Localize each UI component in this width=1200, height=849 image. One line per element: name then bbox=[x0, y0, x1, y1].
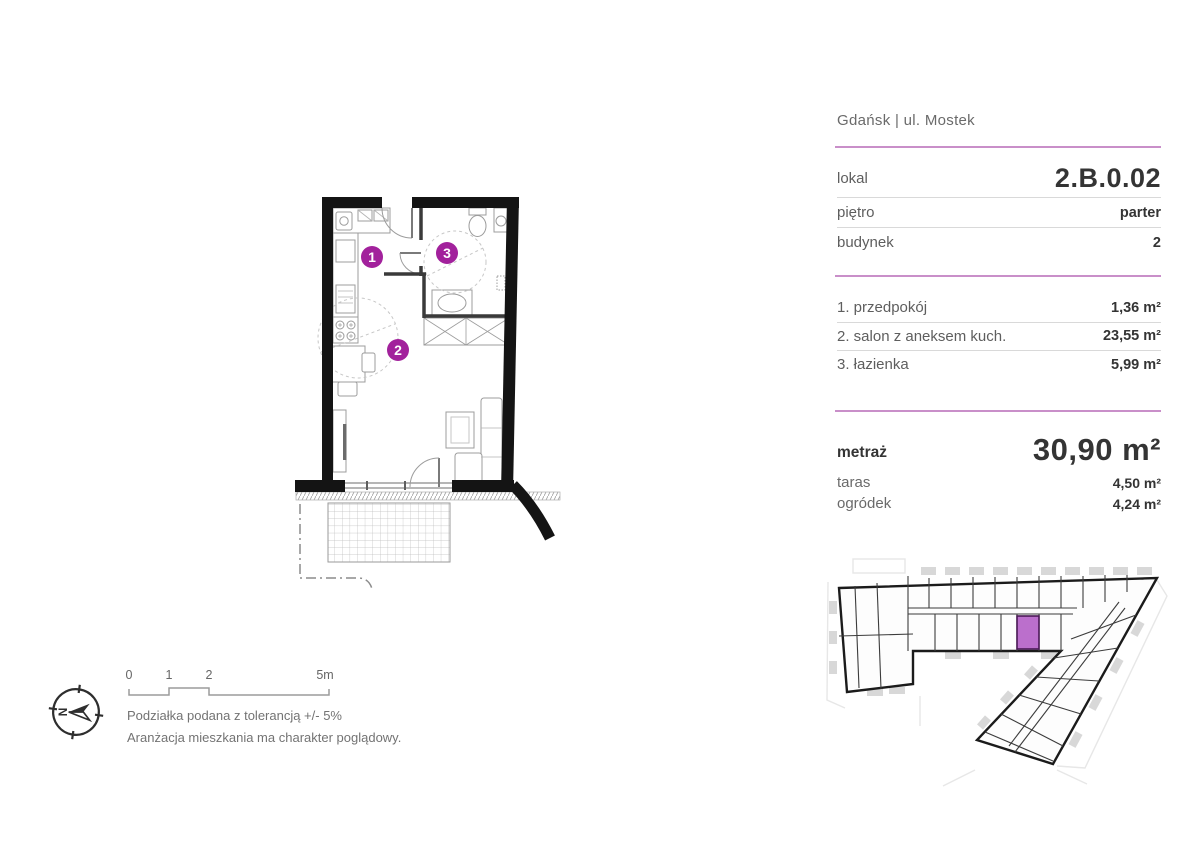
tv-unit bbox=[333, 410, 347, 472]
room-area: 23,55 m² bbox=[1103, 328, 1161, 344]
detail-row-pietro: piętro parter bbox=[837, 198, 1161, 228]
purple-divider bbox=[835, 275, 1161, 277]
stove bbox=[333, 317, 358, 343]
room-label: 2. salon z aneksem kuch. bbox=[837, 328, 1006, 345]
purple-divider bbox=[835, 410, 1161, 412]
scale-bar: 0 1 2 5m bbox=[125, 668, 340, 700]
detail-row-lokal: lokal 2.B.0.02 bbox=[837, 160, 1161, 198]
purple-divider bbox=[835, 146, 1161, 148]
scale-label-0: 0 bbox=[126, 668, 133, 682]
project-location: Gdańsk | ul. Mostek bbox=[837, 112, 975, 129]
svg-text:1: 1 bbox=[368, 249, 376, 265]
pietro-label: piętro bbox=[837, 204, 875, 221]
budynek-label: budynek bbox=[837, 234, 894, 251]
washing-machine bbox=[494, 208, 508, 232]
room-area: 1,36 m² bbox=[1111, 300, 1161, 316]
room-label: 1. przedpokój bbox=[837, 299, 927, 316]
wardrobe bbox=[424, 318, 509, 345]
taras-label: taras bbox=[837, 474, 870, 491]
disclaimer-notes: Podziałka podana z tolerancją +/- 5% Ara… bbox=[127, 705, 401, 749]
note-tolerance: Podziałka podana z tolerancją +/- 5% bbox=[127, 705, 401, 727]
terrace bbox=[328, 503, 450, 562]
floor-value: parter bbox=[1120, 205, 1161, 221]
compass-north-letter: N bbox=[56, 708, 70, 717]
metraz-label: metraż bbox=[837, 444, 887, 468]
room-marker-2: 2 bbox=[387, 339, 409, 361]
note-arrangement: Aranżacja mieszkania ma charakter pogląd… bbox=[127, 727, 401, 749]
scale-label-2: 2 bbox=[206, 668, 213, 682]
room-area: 5,99 m² bbox=[1111, 357, 1161, 373]
room-row-salon: 2. salon z aneksem kuch. 23,55 m² bbox=[837, 322, 1161, 351]
svg-text:2: 2 bbox=[394, 342, 402, 358]
room-marker-3: 3 bbox=[436, 242, 458, 264]
furniture-layer bbox=[331, 208, 509, 486]
scale-label-1: 1 bbox=[166, 668, 173, 682]
room-row-przedpokoj: 1. przedpokój 1,36 m² bbox=[837, 293, 1161, 323]
unit-number: 2.B.0.02 bbox=[1055, 163, 1161, 194]
summary-row-ogrodek: ogródek 4,24 m² bbox=[837, 493, 1161, 514]
building-overview-plan bbox=[825, 556, 1170, 794]
garden-area: 4,24 m² bbox=[1113, 496, 1161, 512]
lokal-label: lokal bbox=[837, 170, 868, 187]
room-row-lazienka: 3. łazienka 5,99 m² bbox=[837, 350, 1161, 379]
total-area: 30,90 m² bbox=[1033, 432, 1161, 468]
detail-row-budynek: budynek 2 bbox=[837, 228, 1161, 257]
dining-table bbox=[331, 346, 375, 396]
bathroom-vanity bbox=[432, 290, 472, 316]
highlighted-unit bbox=[1017, 616, 1039, 649]
radiator bbox=[497, 276, 505, 290]
ogrodek-label: ogródek bbox=[837, 495, 891, 512]
svg-text:3: 3 bbox=[443, 245, 451, 261]
apartment-floorplan: 1 2 3 bbox=[285, 180, 595, 625]
floorplan-sheet: 1 2 3 Gdańsk | ul. Mostek lokal 2.B.0.02… bbox=[0, 0, 1200, 849]
coffee-table bbox=[446, 412, 474, 448]
compass-icon: N bbox=[44, 680, 108, 744]
room-marker-1: 1 bbox=[361, 246, 383, 268]
terrace-area: 4,50 m² bbox=[1113, 475, 1161, 491]
kitchen-counter bbox=[333, 208, 390, 318]
building-value: 2 bbox=[1153, 235, 1161, 251]
summary-row-taras: taras 4,50 m² bbox=[837, 472, 1161, 493]
building-outline bbox=[839, 578, 1157, 764]
toilet bbox=[469, 208, 486, 237]
scale-label-5m: 5m bbox=[316, 668, 333, 682]
room-label: 3. łazienka bbox=[837, 356, 909, 373]
summary-row-metraz: metraż 30,90 m² bbox=[837, 426, 1161, 468]
